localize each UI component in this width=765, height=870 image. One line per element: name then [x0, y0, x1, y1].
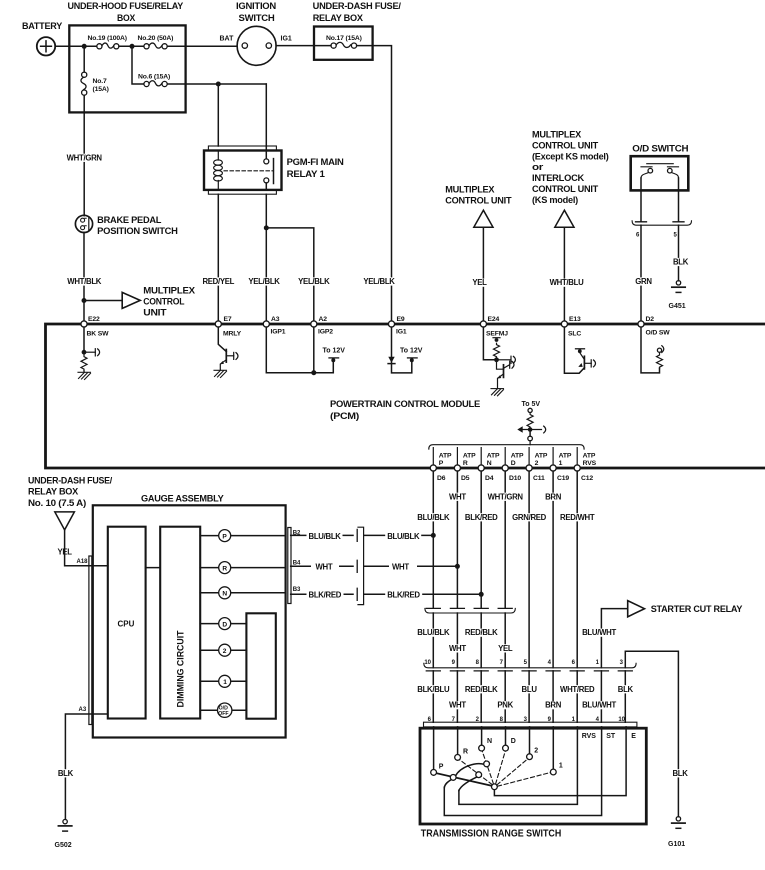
svg-text:A18: A18 — [77, 559, 89, 565]
svg-text:RED/YEL: RED/YEL — [202, 277, 234, 286]
svg-text:CONTROL: CONTROL — [143, 296, 185, 306]
svg-text:PGM-FI MAIN: PGM-FI MAIN — [287, 157, 345, 167]
svg-text:YEL/BLK: YEL/BLK — [298, 277, 330, 286]
svg-text:IGP1: IGP1 — [271, 329, 286, 336]
svg-text:P: P — [439, 764, 444, 771]
svg-text:POWERTRAIN CONTROL MODULE: POWERTRAIN CONTROL MODULE — [330, 399, 480, 409]
svg-text:BLU/BLK: BLU/BLK — [387, 532, 420, 541]
svg-text:D: D — [222, 621, 227, 628]
svg-text:ATP: ATP — [463, 453, 476, 460]
svg-text:YEL/BLK: YEL/BLK — [363, 277, 395, 286]
svg-text:PNK: PNK — [497, 701, 513, 710]
svg-text:BLU: BLU — [522, 685, 538, 694]
svg-text:BRAKE PEDAL: BRAKE PEDAL — [97, 215, 162, 225]
svg-text:GRN/RED: GRN/RED — [512, 513, 547, 522]
svg-text:MRLY: MRLY — [223, 330, 242, 337]
svg-text:BLK: BLK — [672, 769, 688, 778]
svg-text:A3: A3 — [79, 707, 87, 713]
svg-text:BLU/BLK: BLU/BLK — [417, 628, 450, 637]
svg-text:BLK/RED: BLK/RED — [309, 591, 342, 600]
svg-text:E24: E24 — [488, 316, 500, 323]
svg-text:UNDER-DASH FUSE/: UNDER-DASH FUSE/ — [313, 1, 402, 11]
svg-text:No. 10 (7.5 A): No. 10 (7.5 A) — [28, 498, 86, 508]
svg-text:WHT/GRN: WHT/GRN — [67, 153, 103, 162]
svg-text:2: 2 — [223, 648, 227, 655]
svg-text:G502: G502 — [55, 842, 72, 849]
svg-text:P: P — [222, 533, 227, 540]
svg-text:RELAY BOX: RELAY BOX — [28, 487, 79, 497]
svg-text:E: E — [631, 733, 636, 740]
svg-text:1: 1 — [223, 679, 227, 686]
svg-text:BLU/WHT: BLU/WHT — [582, 701, 616, 710]
svg-text:No.6 (15A): No.6 (15A) — [138, 74, 170, 81]
svg-text:GRN: GRN — [635, 277, 652, 286]
svg-text:MULTIPLEX: MULTIPLEX — [532, 130, 582, 140]
svg-text:E9: E9 — [397, 316, 405, 323]
svg-text:D2: D2 — [646, 316, 655, 323]
svg-text:B4: B4 — [293, 560, 301, 566]
svg-text:N: N — [222, 591, 227, 598]
svg-text:ST: ST — [606, 733, 616, 740]
svg-text:BLK: BLK — [58, 769, 74, 778]
svg-text:ATP: ATP — [559, 453, 572, 460]
svg-text:IG1: IG1 — [281, 36, 292, 43]
svg-text:E13: E13 — [569, 316, 581, 323]
svg-text:MULTIPLEX: MULTIPLEX — [143, 285, 196, 295]
svg-text:CONTROL UNIT: CONTROL UNIT — [532, 184, 599, 194]
svg-text:BLK/BLU: BLK/BLU — [417, 685, 450, 694]
svg-text:D6: D6 — [437, 475, 446, 482]
svg-text:R: R — [463, 460, 468, 467]
svg-text:YEL/BLK: YEL/BLK — [248, 277, 280, 286]
svg-text:RED/BLK: RED/BLK — [465, 685, 498, 694]
svg-text:BLK/RED: BLK/RED — [465, 513, 498, 522]
svg-text:ATP: ATP — [535, 453, 548, 460]
svg-text:P: P — [439, 460, 444, 467]
svg-text:(Except KS model): (Except KS model) — [532, 151, 609, 161]
svg-text:BK SW: BK SW — [87, 330, 110, 337]
svg-text:UNDER-DASH FUSE/: UNDER-DASH FUSE/ — [28, 475, 113, 485]
svg-text:1: 1 — [559, 460, 563, 467]
svg-text:IGNITION: IGNITION — [236, 1, 277, 11]
svg-text:To 12V: To 12V — [400, 348, 423, 355]
svg-text:RELAY 1: RELAY 1 — [287, 169, 325, 179]
svg-text:BOX: BOX — [117, 13, 136, 23]
svg-text:YEL: YEL — [58, 547, 73, 556]
svg-text:To 5V: To 5V — [522, 401, 541, 408]
svg-text:C11: C11 — [533, 475, 545, 482]
svg-text:No.17 (15A): No.17 (15A) — [326, 35, 362, 42]
svg-text:E7: E7 — [224, 316, 232, 323]
svg-text:2: 2 — [534, 748, 538, 755]
svg-text:RVS: RVS — [583, 460, 597, 467]
svg-text:MULTIPLEX: MULTIPLEX — [445, 184, 495, 194]
svg-text:E22: E22 — [88, 316, 100, 323]
svg-text:POSITION SWITCH: POSITION SWITCH — [97, 226, 178, 236]
svg-text:(15A): (15A) — [93, 86, 109, 93]
svg-text:R: R — [222, 565, 227, 572]
svg-text:WHT: WHT — [449, 701, 466, 710]
svg-text:TRANSMISSION RANGE SWITCH: TRANSMISSION RANGE SWITCH — [421, 829, 562, 840]
svg-text:BLK: BLK — [618, 685, 634, 694]
svg-text:BATTERY: BATTERY — [22, 21, 62, 31]
svg-text:CONTROL UNIT: CONTROL UNIT — [445, 195, 512, 205]
svg-text:WHT/GRN: WHT/GRN — [488, 492, 524, 501]
svg-text:UNIT: UNIT — [143, 307, 167, 317]
svg-text:RVS: RVS — [582, 733, 597, 740]
svg-text:C12: C12 — [581, 475, 593, 482]
svg-text:SLC: SLC — [568, 330, 581, 337]
svg-text:GAUGE ASSEMBLY: GAUGE ASSEMBLY — [141, 494, 224, 504]
svg-text:WHT: WHT — [449, 492, 466, 501]
svg-text:No.19 (100A): No.19 (100A) — [88, 35, 127, 42]
svg-text:BLU/BLK: BLU/BLK — [417, 513, 450, 522]
svg-text:CPU: CPU — [118, 619, 135, 628]
svg-text:WHT/RED: WHT/RED — [560, 685, 595, 694]
svg-text:BAT: BAT — [220, 36, 235, 43]
svg-text:BLU/BLK: BLU/BLK — [309, 532, 342, 541]
svg-text:No.7: No.7 — [93, 78, 107, 85]
svg-text:DIMMING CIRCUIT: DIMMING CIRCUIT — [176, 630, 187, 707]
svg-text:(PCM): (PCM) — [330, 411, 359, 421]
svg-text:BLU/WHT: BLU/WHT — [582, 628, 616, 637]
svg-text:ATP: ATP — [583, 453, 596, 460]
svg-text:IGP2: IGP2 — [318, 329, 333, 336]
svg-text:WHT: WHT — [449, 644, 466, 653]
svg-text:WHT/BLU: WHT/BLU — [550, 278, 585, 287]
svg-text:D5: D5 — [461, 475, 470, 482]
svg-text:D10: D10 — [509, 475, 521, 482]
svg-text:G101: G101 — [668, 841, 685, 848]
svg-text:A3: A3 — [271, 316, 280, 323]
svg-text:BLK/RED: BLK/RED — [387, 591, 420, 600]
svg-text:WHT: WHT — [392, 563, 409, 572]
svg-text:G451: G451 — [669, 303, 686, 310]
svg-text:RED/BLK: RED/BLK — [465, 628, 498, 637]
svg-text:WHT/BLK: WHT/BLK — [67, 277, 102, 286]
svg-text:ATP: ATP — [511, 453, 524, 460]
svg-text:A2: A2 — [319, 316, 328, 323]
svg-text:BRN: BRN — [545, 701, 562, 710]
svg-text:CONTROL UNIT: CONTROL UNIT — [532, 140, 599, 150]
svg-text:2: 2 — [535, 460, 539, 467]
svg-text:OFF: OFF — [218, 711, 228, 717]
svg-text:INTERLOCK: INTERLOCK — [532, 173, 585, 183]
svg-text:D: D — [511, 738, 516, 745]
svg-text:WHT: WHT — [316, 563, 333, 572]
svg-text:RELAY BOX: RELAY BOX — [313, 13, 364, 23]
svg-text:STARTER CUT RELAY: STARTER CUT RELAY — [651, 604, 743, 614]
svg-text:No.20 (50A): No.20 (50A) — [138, 35, 174, 42]
svg-text:BLK: BLK — [673, 258, 689, 267]
svg-text:SEFMJ: SEFMJ — [486, 330, 508, 337]
svg-text:BRN: BRN — [545, 492, 562, 501]
svg-text:To 12V: To 12V — [323, 348, 346, 355]
svg-text:SWITCH: SWITCH — [239, 13, 276, 23]
svg-text:D4: D4 — [485, 475, 494, 482]
svg-text:IG1: IG1 — [396, 329, 407, 336]
svg-text:10: 10 — [424, 660, 431, 666]
svg-text:N: N — [487, 460, 492, 467]
svg-text:R: R — [463, 749, 468, 756]
svg-text:O/D SW: O/D SW — [646, 330, 671, 337]
svg-text:C19: C19 — [557, 475, 569, 482]
svg-text:ATP: ATP — [439, 453, 452, 460]
svg-text:B3: B3 — [293, 587, 301, 593]
svg-text:UNDER-HOOD FUSE/RELAY: UNDER-HOOD FUSE/RELAY — [68, 1, 184, 11]
svg-text:RED/WHT: RED/WHT — [560, 513, 595, 522]
svg-text:N: N — [487, 738, 492, 745]
svg-text:D: D — [511, 460, 516, 467]
svg-text:(KS model): (KS model) — [532, 195, 578, 205]
svg-text:YEL: YEL — [498, 644, 513, 653]
svg-text:1: 1 — [559, 763, 563, 770]
svg-text:O/D SWITCH: O/D SWITCH — [632, 143, 689, 153]
svg-text:or: or — [532, 162, 544, 172]
svg-text:ATP: ATP — [487, 453, 500, 460]
svg-text:YEL: YEL — [472, 278, 487, 287]
